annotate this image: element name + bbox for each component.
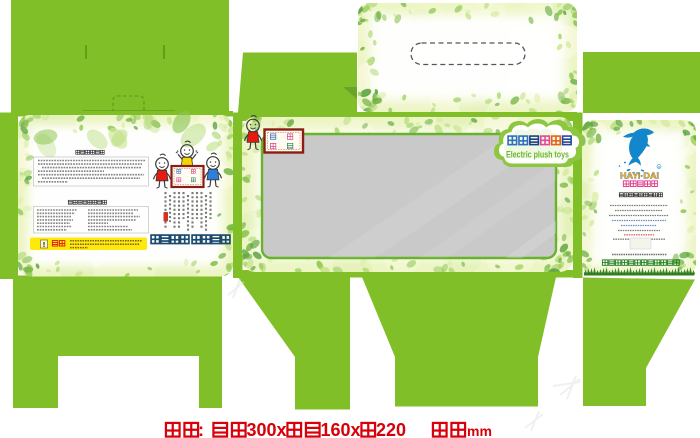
svg-text:HAYi·DAi: HAYi·DAi bbox=[620, 171, 659, 181]
svg-text:220: 220 bbox=[376, 420, 406, 438]
svg-text:mm: mm bbox=[467, 423, 492, 438]
svg-text::: : bbox=[198, 420, 204, 438]
svg-text:160x: 160x bbox=[321, 420, 361, 438]
svg-text:Electric plush toys: Electric plush toys bbox=[506, 150, 569, 160]
svg-text:!: ! bbox=[43, 240, 46, 249]
svg-text:300x: 300x bbox=[247, 420, 287, 438]
